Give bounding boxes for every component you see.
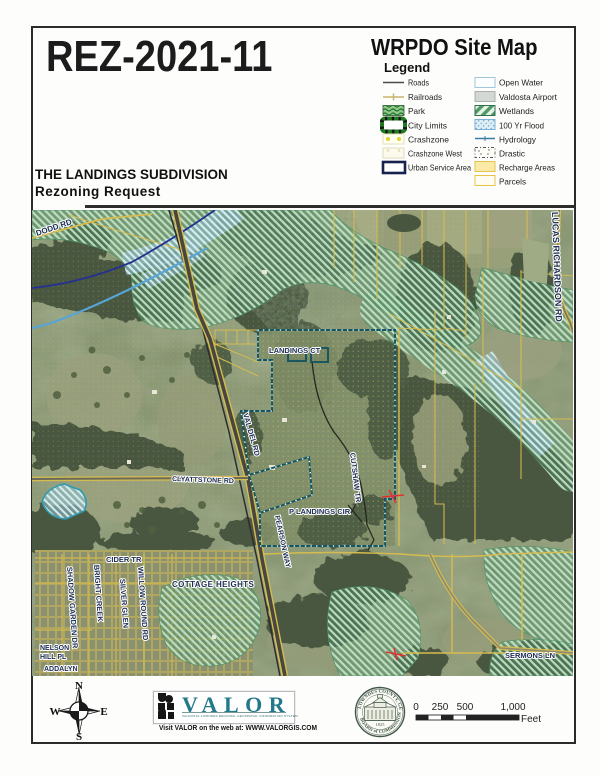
svg-text:250: 250 [432,702,449,713]
svg-text:N: N [75,680,83,692]
svg-text:Recharge Areas: Recharge Areas [499,164,555,173]
svg-text:S: S [76,731,82,742]
svg-text:COTTAGE HEIGHTS: COTTAGE HEIGHTS [172,580,255,589]
svg-text:Park: Park [408,107,426,116]
svg-text:City Limits: City Limits [408,122,447,131]
svg-text:W: W [50,706,61,718]
svg-text:Crashzone West: Crashzone West [408,150,463,159]
svg-text:SERMONS LN: SERMONS LN [505,651,555,660]
svg-text:CIDER TR: CIDER TR [106,555,142,564]
svg-text:Urban Service Area: Urban Service Area [408,164,471,173]
svg-text:100 Yr Flood: 100 Yr Flood [499,122,544,131]
svg-text:0: 0 [413,702,419,713]
svg-text:Parcels: Parcels [499,178,526,187]
svg-text:Open Water: Open Water [499,79,543,88]
svg-text:Feet: Feet [521,714,541,725]
svg-text:Railroads: Railroads [408,93,442,102]
svg-text:Crashzone: Crashzone [408,136,449,145]
svg-text:Drastic: Drastic [499,150,525,159]
svg-text:LANDINGS CT: LANDINGS CT [269,346,321,355]
svg-text:500: 500 [457,702,474,713]
svg-text:Wetlands: Wetlands [499,107,534,116]
svg-text:1825: 1825 [376,722,386,727]
svg-text:P LANDINGS CIR: P LANDINGS CIR [289,507,351,516]
svg-text:1,000: 1,000 [500,702,525,713]
svg-text:NELSON: NELSON [40,645,69,652]
svg-text:Valdosta Airport: Valdosta Airport [499,93,558,102]
svg-text:ADDALYN: ADDALYN [44,666,78,673]
svg-text:HILL PL: HILL PL [40,654,67,661]
svg-text:Roads: Roads [408,79,429,88]
svg-text:Hydrology: Hydrology [499,136,537,145]
svg-text:E: E [100,706,107,718]
